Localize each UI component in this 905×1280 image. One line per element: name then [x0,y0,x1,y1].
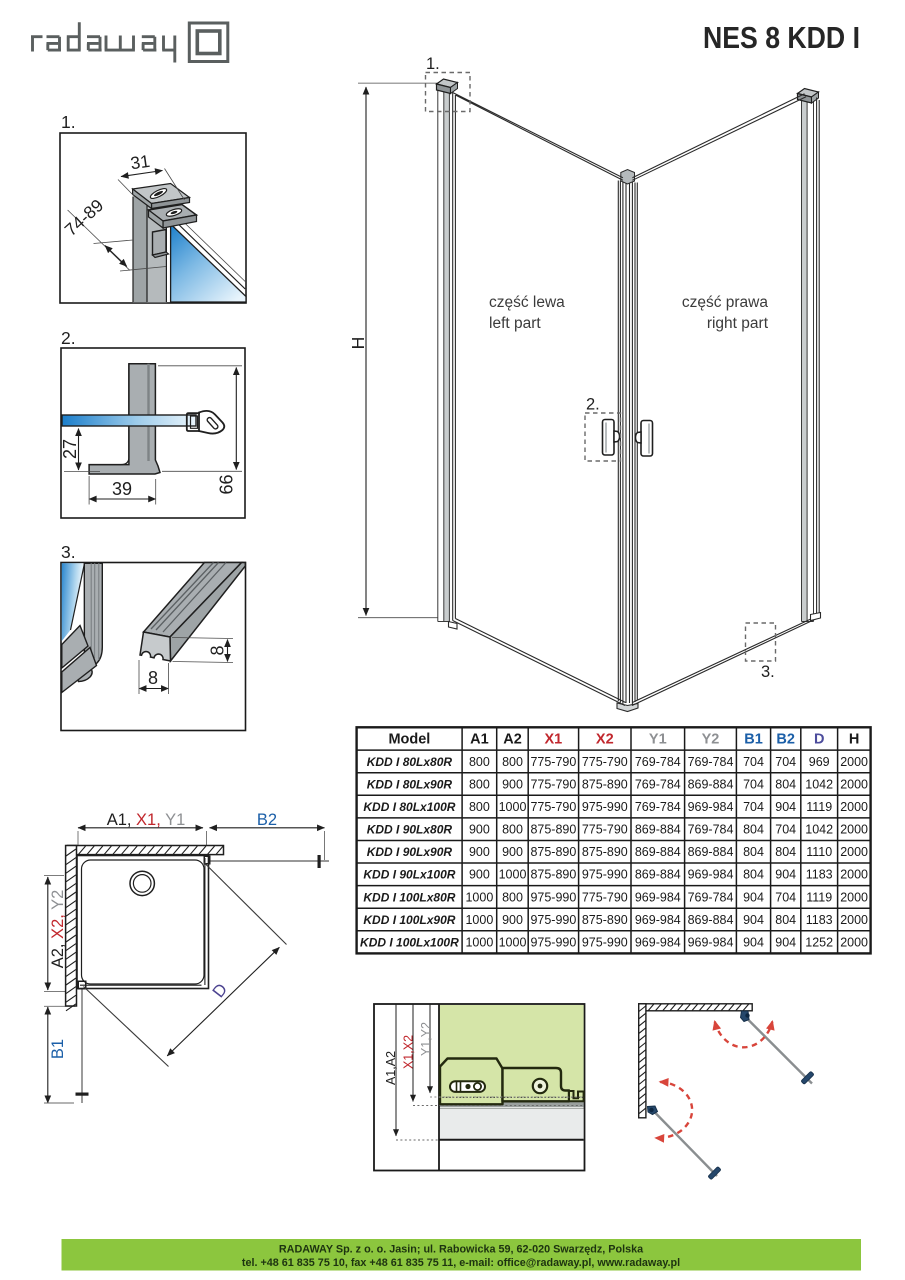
svg-text:775-790: 775-790 [530,800,576,814]
svg-text:1000: 1000 [465,936,493,950]
svg-text:H: H [348,337,368,350]
svg-text:1.: 1. [426,55,440,73]
svg-text:804: 804 [775,845,796,859]
svg-text:KDD I 80Lx80R: KDD I 80Lx80R [367,755,453,769]
svg-text:904: 904 [775,800,796,814]
svg-text:775-790: 775-790 [530,755,576,769]
svg-text:775-790: 775-790 [582,890,628,904]
svg-text:2000: 2000 [840,936,868,950]
svg-text:1000: 1000 [465,890,493,904]
svg-text:975-990: 975-990 [530,936,576,950]
svg-text:704: 704 [775,823,796,837]
svg-text:775-790: 775-790 [530,777,576,791]
svg-text:869-884: 869-884 [688,845,734,859]
svg-text:1183: 1183 [806,868,833,882]
svg-text:2000: 2000 [840,913,868,927]
svg-text:1042: 1042 [805,777,833,791]
svg-text:A1: A1 [470,732,489,748]
svg-text:część prawa: część prawa [682,294,769,311]
svg-text:8: 8 [148,668,158,688]
svg-text:769-784: 769-784 [635,755,681,769]
svg-text:KDD I 100Lx80R: KDD I 100Lx80R [363,890,455,904]
svg-text:KDD I 100Lx90R: KDD I 100Lx90R [363,913,455,927]
svg-text:704: 704 [743,777,764,791]
svg-text:875-890: 875-890 [582,845,628,859]
svg-text:2000: 2000 [840,823,868,837]
svg-text:804: 804 [743,868,764,882]
svg-text:704: 704 [743,800,764,814]
svg-text:800: 800 [502,755,523,769]
svg-text:900: 900 [469,845,490,859]
svg-text:1252: 1252 [805,936,833,950]
svg-text:27: 27 [60,439,80,459]
svg-text:KDD I 80Lx90R: KDD I 80Lx90R [367,777,453,791]
svg-text:904: 904 [743,890,764,904]
svg-text:869-884: 869-884 [635,868,681,882]
svg-text:904: 904 [743,936,764,950]
svg-text:969-984: 969-984 [635,936,681,950]
svg-text:704: 704 [775,890,796,904]
svg-text:3.: 3. [761,663,775,681]
svg-text:769-784: 769-784 [688,755,734,769]
svg-text:KDD I 90Lx80R: KDD I 90Lx80R [367,823,453,837]
svg-text:Y1: Y1 [649,732,667,748]
svg-text:769-784: 769-784 [688,890,734,904]
svg-text:B2: B2 [257,811,277,829]
svg-text:975-990: 975-990 [582,800,628,814]
svg-text:904: 904 [775,936,796,950]
svg-text:900: 900 [502,845,523,859]
svg-text:869-884: 869-884 [635,845,681,859]
svg-text:tel. +48 61 835 75 10, fax +48: tel. +48 61 835 75 10, fax +48 61 835 75… [242,1257,680,1269]
svg-text:część lewa: część lewa [489,294,565,311]
svg-text:B2: B2 [776,732,795,748]
svg-text:Model: Model [388,732,430,748]
svg-text:875-890: 875-890 [530,868,576,882]
svg-text:66: 66 [217,474,237,494]
svg-text:A2: A2 [503,732,522,748]
svg-text:2000: 2000 [840,890,868,904]
svg-text:1119: 1119 [806,800,832,814]
svg-text:969-984: 969-984 [688,868,734,882]
svg-text:2000: 2000 [840,868,868,882]
svg-text:NES 8 KDD I: NES 8 KDD I [703,20,860,55]
svg-text:775-790: 775-790 [582,755,628,769]
svg-text:875-890: 875-890 [530,823,576,837]
svg-text:975-990: 975-990 [530,890,576,904]
svg-text:1000: 1000 [499,936,527,950]
svg-text:X1,X2: X1,X2 [402,1035,416,1069]
svg-text:804: 804 [775,777,796,791]
svg-text:775-790: 775-790 [582,823,628,837]
svg-text:1000: 1000 [499,800,527,814]
svg-text:KDD I 90Lx100R: KDD I 90Lx100R [363,868,455,882]
svg-text:39: 39 [112,479,132,499]
svg-text:D: D [814,732,824,748]
svg-text:1110: 1110 [806,845,832,859]
svg-text:H: H [849,732,859,748]
svg-text:869-884: 869-884 [688,777,734,791]
svg-text:2000: 2000 [840,777,868,791]
svg-text:2.: 2. [61,328,76,348]
svg-text:RADAWAY Sp. z o. o. Jasin; ul.: RADAWAY Sp. z o. o. Jasin; ul. Rabowicka… [279,1244,644,1256]
svg-text:875-890: 875-890 [582,777,628,791]
svg-text:904: 904 [743,913,764,927]
svg-text:2000: 2000 [840,800,868,814]
svg-text:KDD I 100Lx100R: KDD I 100Lx100R [360,936,459,950]
svg-text:800: 800 [469,755,490,769]
svg-text:A1, X1, Y1: A1, X1, Y1 [107,811,186,829]
svg-text:A2, X2, Y2: A2, X2, Y2 [49,890,67,969]
svg-text:969-984: 969-984 [688,936,734,950]
svg-text:2.: 2. [586,396,600,414]
svg-text:1119: 1119 [806,890,832,904]
svg-text:769-784: 769-784 [688,823,734,837]
svg-text:1183: 1183 [806,913,833,927]
svg-text:969-984: 969-984 [635,913,681,927]
svg-text:900: 900 [469,868,490,882]
svg-text:B1: B1 [49,1039,67,1059]
svg-text:800: 800 [469,777,490,791]
svg-text:869-884: 869-884 [688,913,734,927]
svg-text:804: 804 [743,845,764,859]
svg-text:31: 31 [129,151,151,174]
svg-text:B1: B1 [744,732,763,748]
svg-text:975-990: 975-990 [582,936,628,950]
svg-text:1000: 1000 [499,868,527,882]
svg-text:900: 900 [502,913,523,927]
svg-text:800: 800 [469,800,490,814]
svg-text:1042: 1042 [805,823,833,837]
svg-text:1.: 1. [61,112,76,132]
svg-text:Y2: Y2 [702,732,720,748]
svg-text:969-984: 969-984 [688,800,734,814]
svg-text:900: 900 [469,823,490,837]
svg-text:right part: right part [707,315,769,332]
svg-text:704: 704 [743,755,764,769]
svg-text:800: 800 [502,890,523,904]
svg-text:900: 900 [502,777,523,791]
svg-text:875-890: 875-890 [530,845,576,859]
svg-text:2000: 2000 [840,845,868,859]
svg-text:869-884: 869-884 [635,823,681,837]
svg-text:3.: 3. [61,542,76,562]
svg-text:804: 804 [775,913,796,927]
svg-text:8: 8 [208,645,228,655]
svg-text:769-784: 769-784 [635,800,681,814]
svg-text:904: 904 [775,868,796,882]
svg-text:804: 804 [743,823,764,837]
svg-text:969-984: 969-984 [635,890,681,904]
svg-text:A1,A2: A1,A2 [384,1051,398,1085]
svg-text:875-890: 875-890 [582,913,628,927]
svg-text:769-784: 769-784 [635,777,681,791]
svg-text:969: 969 [809,755,830,769]
svg-text:left part: left part [489,315,541,332]
svg-text:1000: 1000 [465,913,493,927]
svg-text:800: 800 [502,823,523,837]
svg-text:X1: X1 [545,732,563,748]
svg-text:KDD I 90Lx90R: KDD I 90Lx90R [367,845,453,859]
svg-text:KDD I 80Lx100R: KDD I 80Lx100R [363,800,455,814]
svg-text:975-990: 975-990 [582,868,628,882]
svg-text:975-990: 975-990 [530,913,576,927]
svg-text:X2: X2 [596,732,614,748]
svg-text:704: 704 [775,755,796,769]
svg-text:Y1,Y2: Y1,Y2 [419,1022,433,1056]
svg-text:2000: 2000 [840,755,868,769]
